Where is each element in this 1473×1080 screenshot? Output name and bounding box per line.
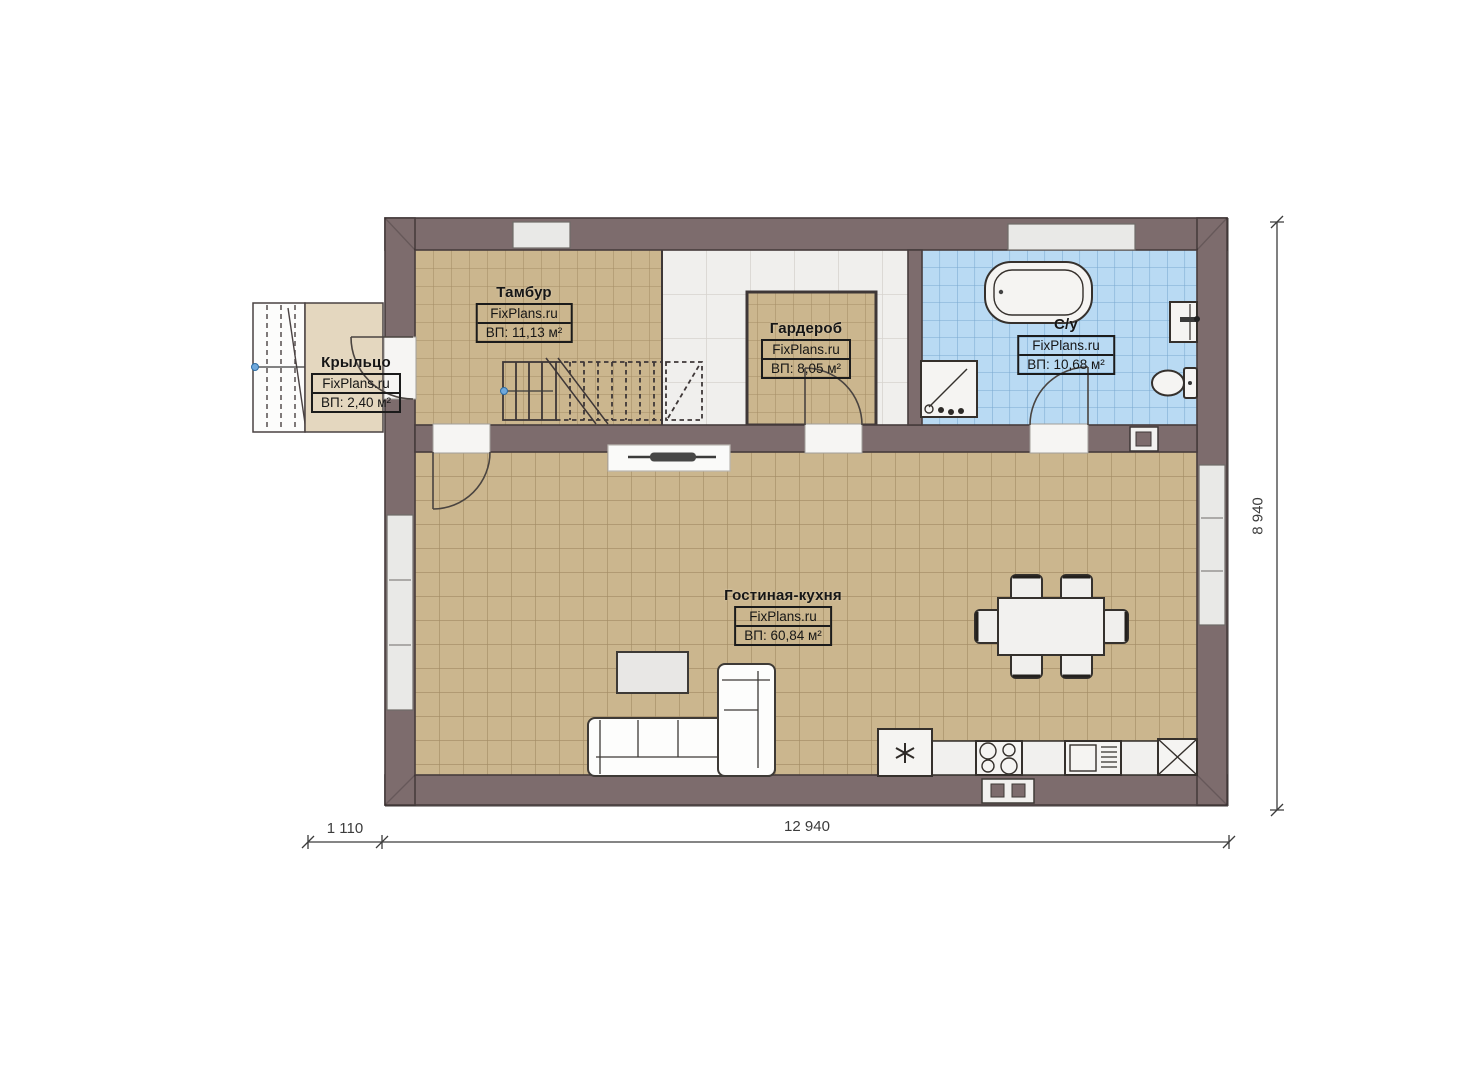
kitchen-sink xyxy=(1158,739,1197,775)
window-right xyxy=(1199,465,1225,625)
chair xyxy=(1101,610,1128,643)
brand-text: FixPlans.ru xyxy=(313,375,399,394)
room-title: Гардероб xyxy=(761,320,851,337)
room-info-box: FixPlans.ru ВП: 11,13 м² xyxy=(476,303,573,343)
floor-plan-canvas: Тамбур FixPlans.ru ВП: 11,13 м² Гардероб… xyxy=(0,0,1473,1080)
bathtub xyxy=(985,262,1092,323)
room-title: Гостиная-кухня xyxy=(724,587,842,604)
room-label-wardrobe: Гардероб FixPlans.ru ВП: 8,05 м² xyxy=(761,320,851,379)
room-label-living-kitchen: Гостиная-кухня FixPlans.ru ВП: 60,84 м² xyxy=(724,587,842,646)
toilet xyxy=(1152,368,1197,398)
bathroom-sink xyxy=(1170,302,1200,342)
bathroom-door-opening xyxy=(1030,424,1088,453)
wardrobe-door-opening xyxy=(805,424,862,453)
room-area: ВП: 10,68 м² xyxy=(1019,356,1113,373)
room-info-box: FixPlans.ru ВП: 8,05 м² xyxy=(761,339,851,379)
living-door-opening xyxy=(433,424,490,453)
wall-vent xyxy=(1130,427,1158,451)
room-area: ВП: 60,84 м² xyxy=(736,627,830,644)
shower xyxy=(921,361,977,417)
stair-start-marker xyxy=(252,364,259,371)
tv-console xyxy=(608,445,730,471)
room-label-vestibule: Тамбур FixPlans.ru ВП: 11,13 м² xyxy=(476,284,573,343)
floor-plan-drawing xyxy=(0,0,1473,1080)
oven-unit xyxy=(1065,741,1121,775)
room-area: ВП: 2,40 м² xyxy=(313,394,399,411)
stair-start-marker xyxy=(501,388,508,395)
brand-text: FixPlans.ru xyxy=(736,608,830,627)
window-left xyxy=(387,515,413,710)
dining-table xyxy=(998,598,1104,655)
porch-steps xyxy=(252,303,309,432)
room-info-box: FixPlans.ru ВП: 60,84 м² xyxy=(734,606,832,646)
brand-text: FixPlans.ru xyxy=(763,341,849,360)
dimension-house-height: 8 940 xyxy=(1250,497,1267,535)
brand-text: FixPlans.ru xyxy=(1019,337,1113,356)
dimension-porch-depth: 1 110 xyxy=(327,820,363,837)
room-title: С/у xyxy=(1017,316,1115,333)
room-area: ВП: 11,13 м² xyxy=(478,324,571,341)
wall-left xyxy=(385,218,415,805)
stove xyxy=(976,741,1022,775)
room-area: ВП: 8,05 м² xyxy=(763,360,849,377)
wall-bathroom xyxy=(908,250,922,425)
room-title: Тамбур xyxy=(476,284,573,301)
dimension-house-width: 12 940 xyxy=(784,818,830,835)
room-info-box: FixPlans.ru ВП: 2,40 м² xyxy=(311,373,401,413)
sink-faucet xyxy=(1180,317,1196,322)
room-title: Крыльцо xyxy=(311,354,401,371)
tub-faucet xyxy=(999,290,1003,294)
brand-text: FixPlans.ru xyxy=(478,305,571,324)
kitchen-vent xyxy=(982,779,1034,803)
coffee-table xyxy=(617,652,688,693)
window-top-bathroom xyxy=(1008,224,1135,250)
wall-bottom xyxy=(385,775,1227,805)
room-label-bathroom: С/у FixPlans.ru ВП: 10,68 м² xyxy=(1017,316,1115,375)
room-label-porch: Крыльцо FixPlans.ru ВП: 2,40 м² xyxy=(311,354,401,413)
fridge xyxy=(878,729,932,776)
room-info-box: FixPlans.ru ВП: 10,68 м² xyxy=(1017,335,1115,375)
sofa-chaise xyxy=(718,664,775,776)
window-top-vestibule xyxy=(513,222,570,248)
